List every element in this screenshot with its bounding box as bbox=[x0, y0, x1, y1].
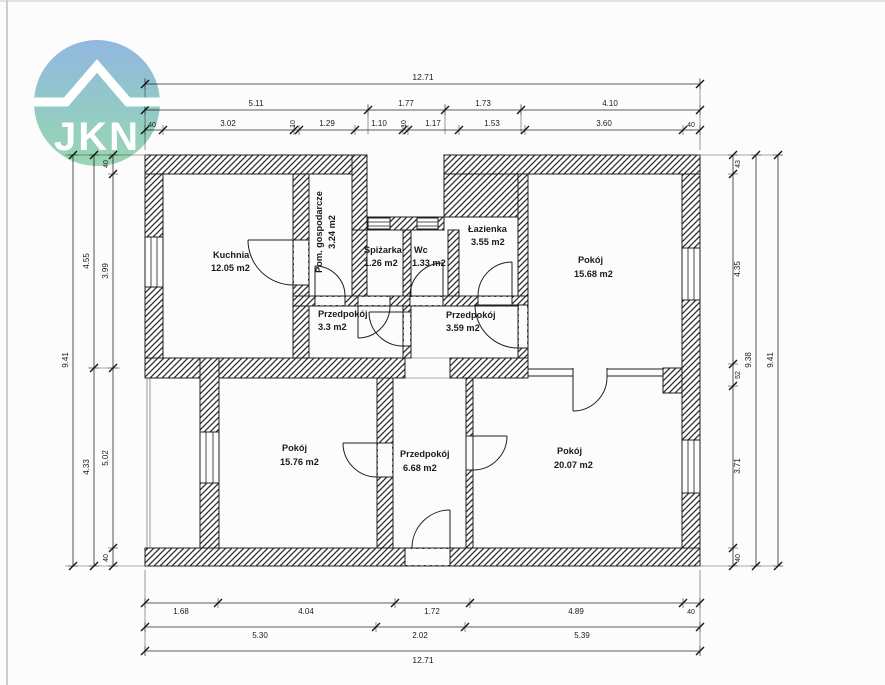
logo-text: JKN bbox=[54, 115, 140, 159]
svg-text:Pom. gospodarcze: Pom. gospodarcze bbox=[314, 191, 324, 273]
svg-text:1.68: 1.68 bbox=[173, 607, 189, 616]
svg-text:5.39: 5.39 bbox=[574, 631, 590, 640]
door-kuchnia bbox=[248, 240, 309, 285]
svg-text:40: 40 bbox=[687, 122, 695, 129]
svg-text:15.76 m2: 15.76 m2 bbox=[280, 457, 319, 467]
svg-text:10: 10 bbox=[290, 120, 297, 128]
svg-text:2.02: 2.02 bbox=[412, 631, 428, 640]
svg-text:5.02: 5.02 bbox=[101, 450, 110, 466]
walls bbox=[145, 155, 700, 566]
svg-text:40: 40 bbox=[103, 554, 110, 562]
room-pokoj-gorny: Pokój 15.68 m2 bbox=[574, 255, 613, 279]
svg-text:1.53: 1.53 bbox=[484, 119, 500, 128]
room-przedpokoj-3: Przedpokój 6.68 m2 bbox=[400, 449, 450, 473]
door-pokoj-dolny-lewy bbox=[343, 443, 393, 477]
room-kuchnia: Kuchnia 12.05 m2 bbox=[211, 250, 250, 273]
scanned-floor-plan-page: Kuchnia 12.05 m2 Pom. gospodarcze 3.24 m… bbox=[0, 0, 885, 685]
door-przedpokoje bbox=[369, 312, 411, 346]
svg-text:4.35: 4.35 bbox=[733, 261, 742, 277]
svg-text:6.68 m2: 6.68 m2 bbox=[403, 463, 437, 473]
svg-text:20.07 m2: 20.07 m2 bbox=[554, 460, 593, 470]
svg-text:15.68 m2: 15.68 m2 bbox=[574, 269, 613, 279]
door-miedzy-pokojami bbox=[573, 368, 607, 411]
svg-text:Pokój: Pokój bbox=[557, 446, 582, 456]
svg-text:4.33: 4.33 bbox=[82, 459, 91, 475]
door-lazienka bbox=[478, 262, 512, 306]
svg-text:Pokój: Pokój bbox=[282, 443, 307, 453]
svg-text:9.41: 9.41 bbox=[766, 352, 775, 368]
svg-text:3.60: 3.60 bbox=[596, 119, 612, 128]
dim-bottom: 1.68 4.04 1.72 4.89 40 5.30 2.02 5.39 12… bbox=[141, 598, 704, 665]
room-przedpokoj-1: Przedpokój 3.3 m2 bbox=[318, 309, 368, 332]
svg-text:1.29: 1.29 bbox=[319, 119, 335, 128]
svg-text:Przedpokój: Przedpokój bbox=[318, 309, 368, 319]
opening-middle-wall bbox=[405, 358, 450, 378]
room-spizarka: Spiżarka 1.26 m2 bbox=[364, 245, 403, 268]
logo: JKN bbox=[30, 40, 164, 166]
room-pokoj-dolny-prawy: Pokój 20.07 m2 bbox=[554, 446, 593, 470]
svg-text:3.59 m2: 3.59 m2 bbox=[446, 323, 480, 333]
svg-text:1.77: 1.77 bbox=[398, 99, 414, 108]
svg-text:4.55: 4.55 bbox=[82, 253, 91, 269]
svg-text:43: 43 bbox=[735, 160, 742, 168]
svg-text:Przedpokój: Przedpokój bbox=[400, 449, 450, 459]
svg-text:5.30: 5.30 bbox=[252, 631, 268, 640]
window-pokoj-dolny-prawy bbox=[682, 440, 700, 493]
svg-text:1.33 m2: 1.33 m2 bbox=[412, 258, 446, 268]
svg-text:4.10: 4.10 bbox=[602, 99, 618, 108]
svg-text:3.24 m2: 3.24 m2 bbox=[327, 215, 337, 249]
svg-text:12.05 m2: 12.05 m2 bbox=[211, 263, 250, 273]
svg-text:3.71: 3.71 bbox=[733, 458, 742, 474]
window-pokoj-dolny-lewy bbox=[200, 432, 219, 483]
svg-text:9.38: 9.38 bbox=[744, 352, 753, 368]
room-przedpokoj-2: Przedpokój 3.59 m2 bbox=[446, 310, 496, 333]
svg-text:3.3 m2: 3.3 m2 bbox=[318, 322, 347, 332]
window-pokoj-gorny bbox=[682, 248, 700, 300]
svg-text:Spiżarka: Spiżarka bbox=[364, 245, 403, 255]
dim-left: 9.41 4.55 4.33 40 3.99 5.02 40 bbox=[61, 151, 118, 570]
window-kuchnia bbox=[145, 237, 163, 287]
svg-text:Wc: Wc bbox=[414, 245, 428, 255]
svg-text:3.99: 3.99 bbox=[101, 263, 110, 279]
svg-text:9.41: 9.41 bbox=[61, 352, 70, 368]
window-wc bbox=[417, 218, 438, 229]
svg-text:1.10: 1.10 bbox=[371, 119, 387, 128]
svg-text:Łazienka: Łazienka bbox=[468, 224, 508, 234]
svg-text:3.02: 3.02 bbox=[220, 119, 236, 128]
svg-text:10: 10 bbox=[401, 120, 408, 128]
svg-text:Przedpokój: Przedpokój bbox=[446, 310, 496, 320]
door-pokoj-dolny-prawy bbox=[466, 436, 507, 470]
room-labels: Kuchnia 12.05 m2 Pom. gospodarcze 3.24 m… bbox=[211, 191, 613, 473]
svg-text:1.73: 1.73 bbox=[475, 99, 491, 108]
entrance-door bbox=[405, 510, 450, 566]
svg-text:52: 52 bbox=[735, 371, 742, 379]
svg-text:5.11: 5.11 bbox=[249, 99, 265, 108]
dim-right: 43 4.35 52 3.71 40 9.38 9.41 bbox=[728, 151, 783, 570]
room-pom-gospodarcze: Pom. gospodarcze 3.24 m2 bbox=[314, 191, 337, 273]
svg-text:12.71: 12.71 bbox=[412, 72, 434, 82]
svg-text:1.26 m2: 1.26 m2 bbox=[364, 258, 398, 268]
svg-text:4.89: 4.89 bbox=[568, 607, 584, 616]
svg-text:4.04: 4.04 bbox=[298, 607, 314, 616]
door-wc bbox=[410, 263, 443, 306]
floor-plan-svg: Kuchnia 12.05 m2 Pom. gospodarcze 3.24 m… bbox=[0, 0, 885, 685]
svg-text:40: 40 bbox=[735, 554, 742, 562]
svg-text:Pokój: Pokój bbox=[578, 255, 603, 265]
svg-text:12.71: 12.71 bbox=[412, 655, 434, 665]
window-spizarka bbox=[368, 218, 390, 229]
svg-text:Kuchnia: Kuchnia bbox=[213, 250, 250, 260]
room-pokoj-dolny-lewy: Pokój 15.76 m2 bbox=[280, 443, 319, 467]
svg-text:1.72: 1.72 bbox=[424, 607, 440, 616]
svg-text:3.55 m2: 3.55 m2 bbox=[471, 237, 505, 247]
room-lazienka: Łazienka 3.55 m2 bbox=[468, 224, 508, 247]
room-wc: Wc 1.33 m2 bbox=[412, 245, 446, 268]
svg-text:40: 40 bbox=[687, 609, 695, 616]
dim-top: 12.71 5.11 1.77 1.73 4.10 40 3.02 10 1.2… bbox=[141, 72, 704, 135]
svg-text:1.17: 1.17 bbox=[425, 119, 441, 128]
